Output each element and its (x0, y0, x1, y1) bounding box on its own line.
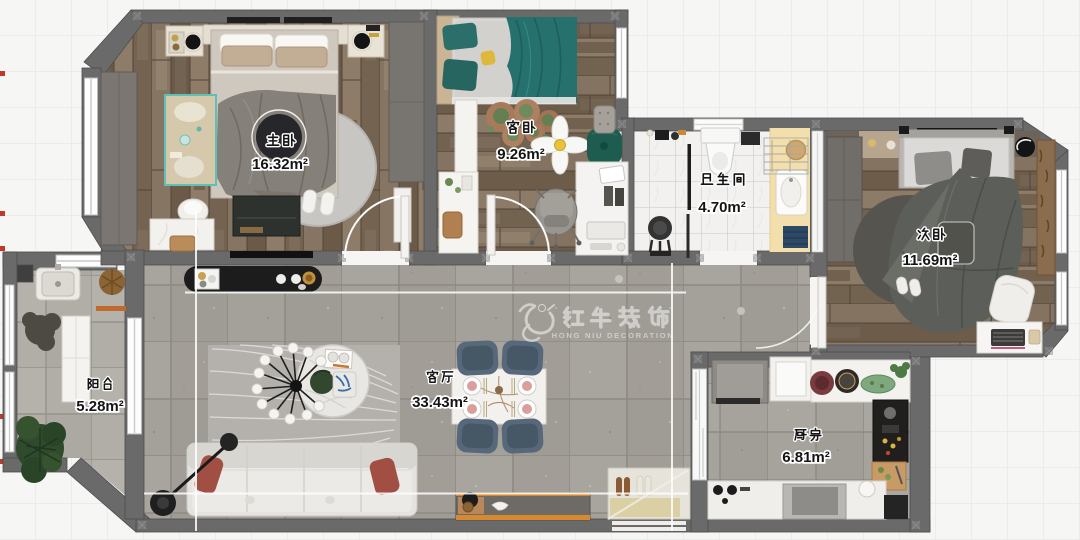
svg-text:6.81m²: 6.81m² (782, 449, 830, 466)
svg-text:11.69m²: 11.69m² (902, 252, 957, 269)
svg-text:33.43m²: 33.43m² (412, 394, 468, 411)
svg-text:9.26m²: 9.26m² (497, 146, 545, 163)
svg-text:HONG NIU DECORATION: HONG NIU DECORATION (552, 331, 675, 340)
svg-text:16.32m²: 16.32m² (252, 156, 308, 173)
svg-text:4.70m²: 4.70m² (698, 199, 746, 216)
svg-text:5.28m²: 5.28m² (76, 398, 124, 415)
